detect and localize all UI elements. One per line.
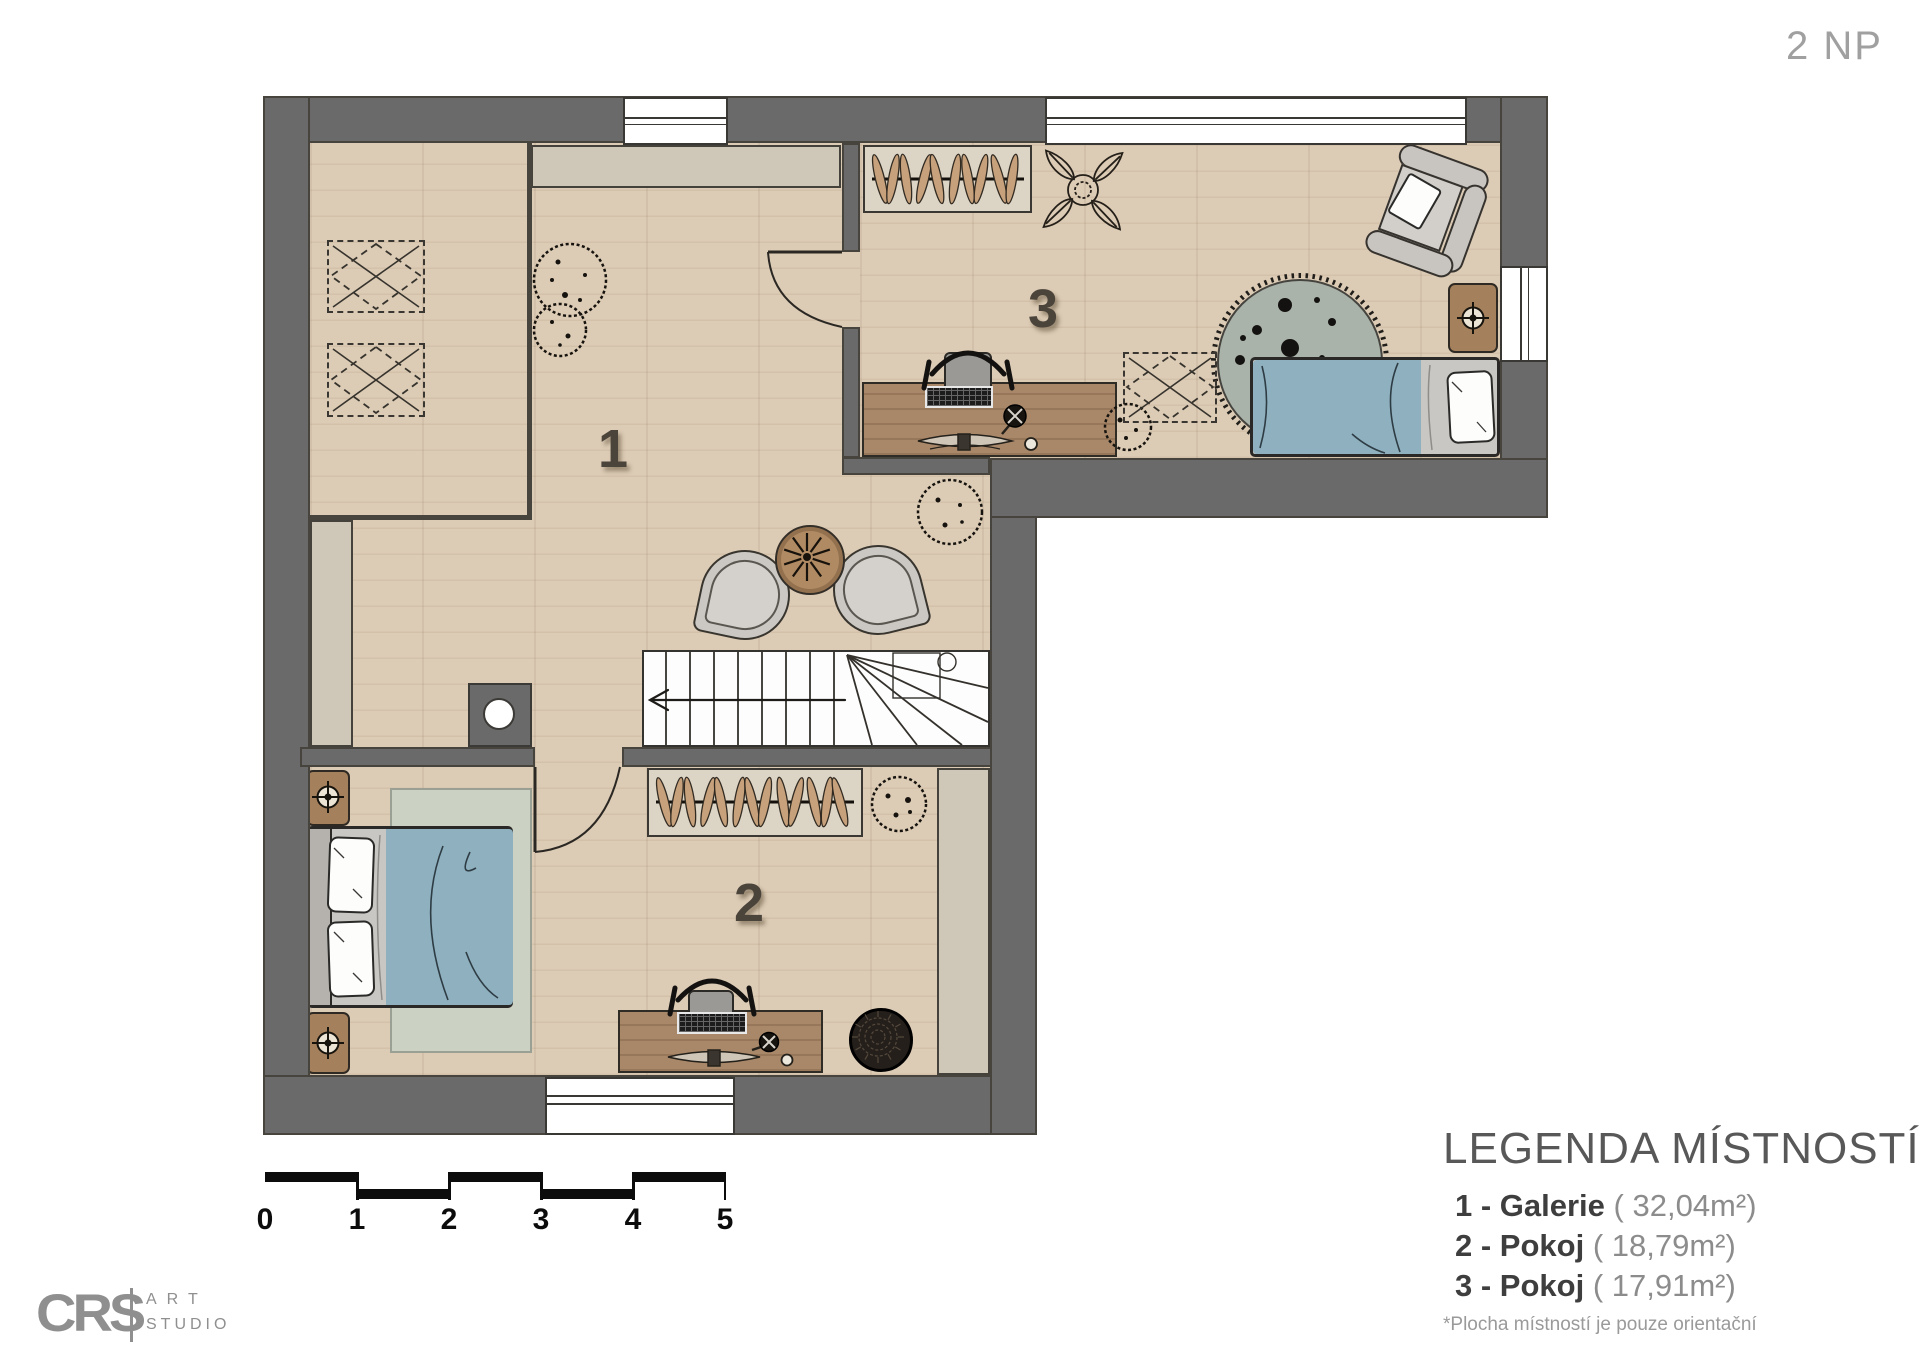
scale-segment <box>541 1189 633 1199</box>
wall-wing-bottom <box>990 458 1548 518</box>
legend-item-label: 1 - Galerie <box>1455 1188 1605 1223</box>
nightstand <box>306 770 350 826</box>
closet-wall-right <box>527 143 532 520</box>
legend-item-area: ( 18,79m²) <box>1593 1228 1736 1263</box>
scale-label: 2 <box>437 1203 461 1237</box>
chimney <box>468 683 532 747</box>
single-bed <box>1250 357 1500 457</box>
logo-brand: CRS <box>36 1282 142 1344</box>
scale-segment <box>357 1189 449 1199</box>
wall-divider-r1-r2 <box>622 747 992 767</box>
legend-title: LEGENDA MÍSTNOSTÍ <box>1443 1124 1920 1174</box>
window-bottom <box>545 1077 735 1135</box>
window-top-left <box>623 97 728 145</box>
logo-divider <box>130 1288 133 1342</box>
knee-wall-room2 <box>937 768 990 1075</box>
skylight-room3 <box>1123 352 1217 423</box>
room-label-1: 1 <box>598 418 628 480</box>
keyboard <box>677 1012 747 1034</box>
legend-item: 3 - Pokoj ( 17,91m²) <box>1455 1268 1736 1304</box>
floor-plan-page: 1 2 3 0 1 2 3 4 5 2 NP LEGENDA MÍSTNOSTÍ… <box>0 0 1920 1357</box>
pillow <box>327 920 376 998</box>
legend-item: 1 - Galerie ( 32,04m²) <box>1455 1188 1757 1224</box>
nightstand <box>1448 283 1498 353</box>
logo-line1: ART <box>146 1291 208 1309</box>
window-top-right <box>1045 97 1467 145</box>
wall-divider-r1-r3 <box>842 327 860 458</box>
skylight-closet-1 <box>327 240 425 313</box>
scale-label: 1 <box>345 1203 369 1237</box>
double-bed <box>307 826 513 1008</box>
wardrobe-room2 <box>647 768 863 837</box>
duvet <box>386 829 513 1005</box>
legend-item: 2 - Pokoj ( 18,79m²) <box>1455 1228 1736 1264</box>
legend-item-label: 3 - Pokoj <box>1455 1268 1584 1303</box>
pillow <box>327 836 376 914</box>
scale-segment <box>449 1172 541 1182</box>
scale-label: 5 <box>713 1203 737 1237</box>
logo-line2: STUDIO <box>146 1316 230 1334</box>
wall-under-desk3 <box>842 457 990 475</box>
armchair-cushion <box>703 553 786 636</box>
skylight-closet-2 <box>327 343 425 417</box>
coffee-table <box>775 525 845 595</box>
pillow <box>1446 370 1496 444</box>
nightstand <box>306 1012 350 1074</box>
wall-divider-r1-r3 <box>842 143 860 252</box>
scale-segment <box>265 1172 357 1182</box>
scale-label: 0 <box>253 1203 277 1237</box>
legend-item-label: 2 - Pokoj <box>1455 1228 1584 1263</box>
floor-label: 2 NP <box>1786 24 1883 69</box>
wall-right-lower <box>990 458 1037 1135</box>
scale-label: 4 <box>621 1203 645 1237</box>
knee-wall-top <box>531 145 841 188</box>
legend-item-area: ( 17,91m²) <box>1593 1268 1736 1303</box>
staircase <box>642 650 990 747</box>
room-label-2: 2 <box>734 872 764 934</box>
armchair-cushion <box>836 548 921 633</box>
rattan-pouf <box>849 1008 913 1072</box>
wall-left <box>263 96 310 1135</box>
scale-label: 3 <box>529 1203 553 1237</box>
chimney-flue <box>483 698 515 730</box>
keyboard <box>925 386 993 408</box>
wall-divider-r1-r2 <box>300 747 535 767</box>
scale-segment <box>633 1172 725 1182</box>
duvet <box>1253 360 1421 454</box>
room-label-3: 3 <box>1028 278 1058 340</box>
closet-wall-bottom <box>310 515 532 520</box>
knee-wall-left <box>310 520 353 747</box>
wardrobe-room3 <box>863 145 1032 213</box>
legend-item-area: ( 32,04m²) <box>1614 1188 1757 1223</box>
legend-footnote: *Plocha místností je pouze orientační <box>1443 1314 1757 1336</box>
window-right <box>1500 266 1548 362</box>
